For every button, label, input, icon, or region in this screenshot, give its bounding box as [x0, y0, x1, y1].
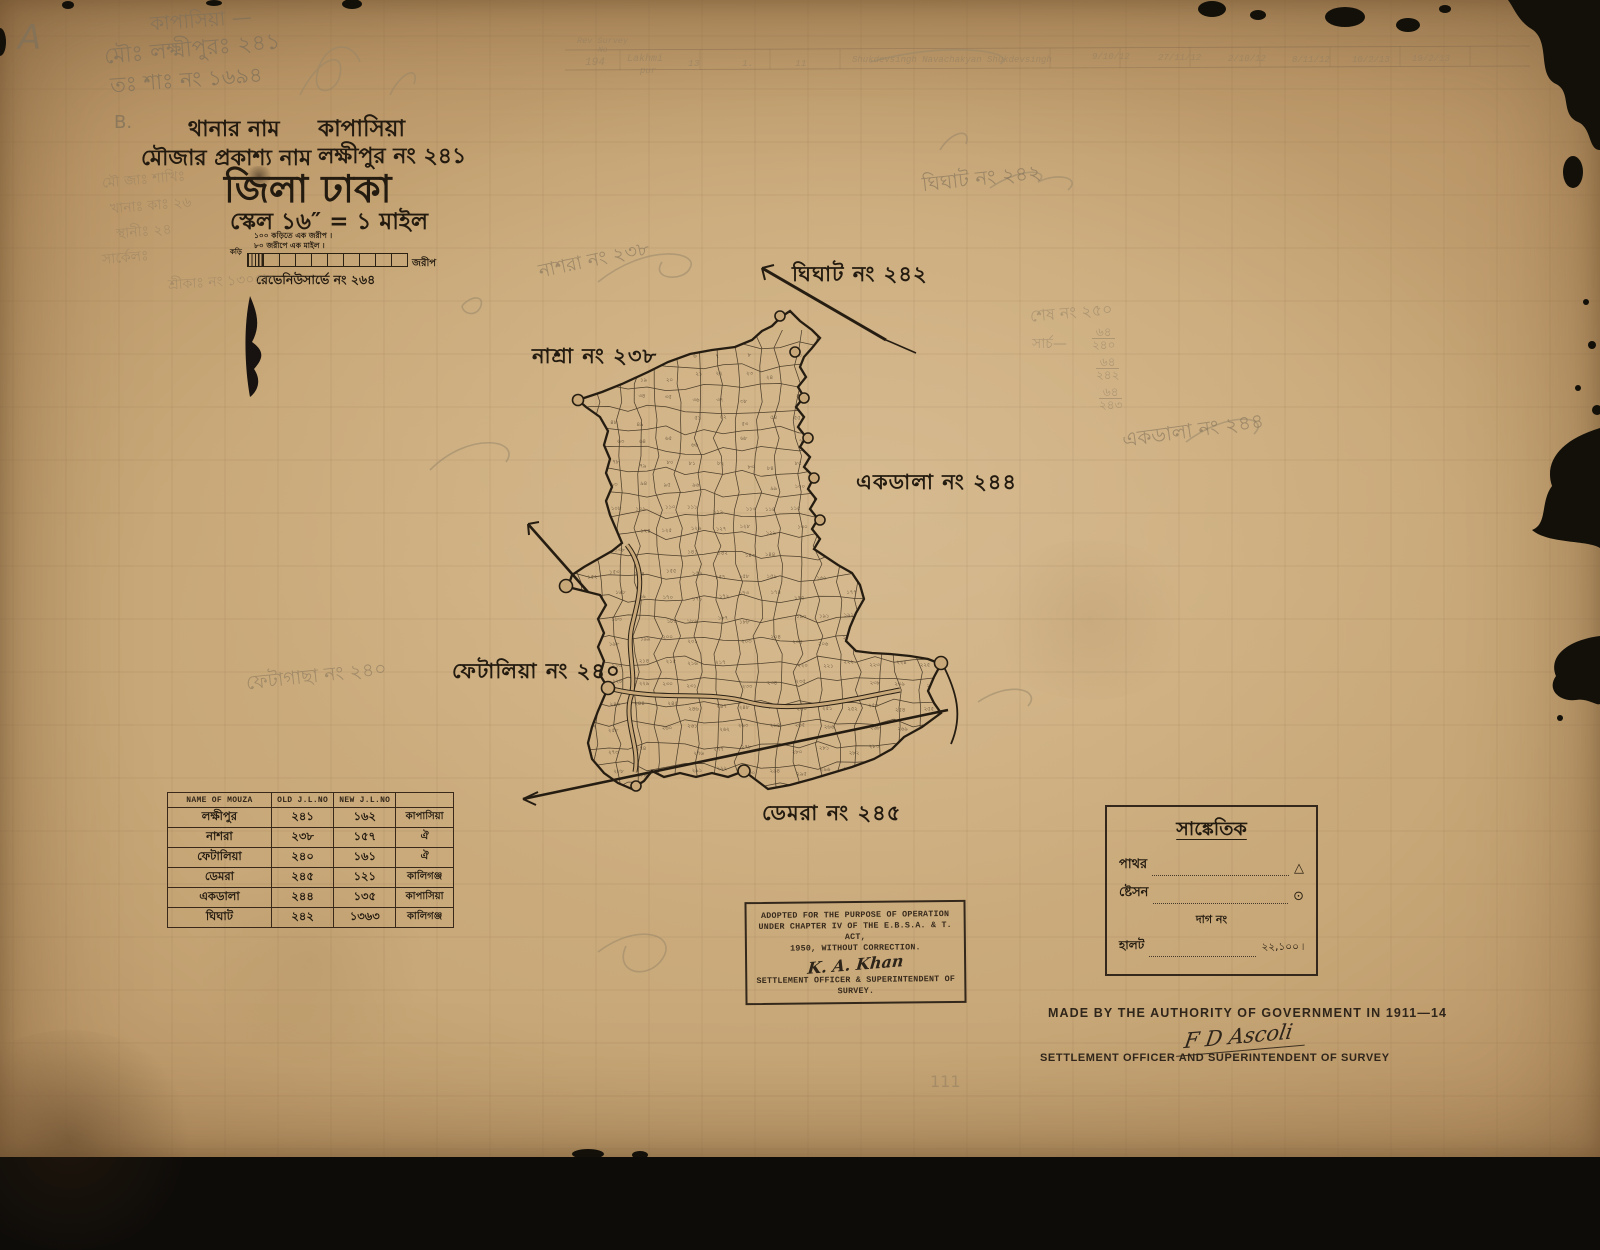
svg-text:২২৯: ২২৯	[639, 681, 649, 687]
legend-row-halot: হালট ২২,১০০ ৷	[1119, 937, 1304, 957]
col-new-header: NEW J.L.NO	[334, 793, 396, 808]
svg-text:৮২: ৮২	[717, 461, 724, 467]
svg-text:১২১: ১২১	[561, 528, 571, 534]
rev-survey-c3: 11	[795, 58, 806, 69]
svg-text:৯২: ৯২	[587, 483, 594, 489]
svg-text:২৬: ২৬	[818, 377, 825, 383]
svg-text:২৯৪: ২৯৪	[770, 768, 780, 774]
pencil-corner-b: B.	[114, 112, 132, 133]
table-row: একডালা২৪৪ ১৩৫কাপাসিয়া	[168, 888, 454, 908]
svg-text:১৭৫: ১৭৫	[794, 596, 804, 602]
svg-text:১৩: ১৩	[871, 354, 878, 360]
svg-text:১২৭: ১২৭	[716, 527, 726, 533]
svg-text:৭৪: ৭৪	[896, 437, 903, 443]
svg-text:১৭৭: ১৭৭	[846, 590, 856, 596]
svg-text:২৮: ২৮	[872, 375, 879, 381]
svg-text:১০৬: ১০৬	[564, 503, 575, 509]
svg-text:২৮৫: ২৮৫	[925, 751, 935, 757]
svg-text:২৪৫: ২৪৫	[668, 701, 678, 707]
svg-text:২৮৬: ২৮৬	[562, 768, 573, 774]
table-row: ফেটালিয়া২৪০ ১৬১ঐ	[168, 848, 454, 868]
svg-text:২১০: ২১০	[921, 636, 931, 642]
svg-text:২৬২: ২৬২	[719, 727, 729, 733]
revenue-survey-line: রেভেনিউসার্ভে নং ২৬৪	[256, 272, 375, 292]
table-header-row: NAME OF MOUZA OLD J.L.NO NEW J.L.NO	[168, 793, 454, 808]
svg-text:৩০৮: ৩০৮	[743, 792, 754, 798]
svg-text:২৫৮: ২৫৮	[608, 728, 619, 734]
label-nashra: নাশ্রা নং ২৩৮	[532, 340, 657, 375]
svg-text:১৯৫: ১৯৫	[924, 620, 934, 626]
svg-text:৭২: ৭২	[847, 439, 854, 445]
svg-text:২১৭: ২১৭	[715, 660, 725, 666]
svg-text:২৪৬: ২৪৬	[688, 706, 699, 712]
svg-text:১৩২: ১৩২	[842, 530, 852, 536]
table-row: ডেমরা২৪৫ ১২১কালিগঞ্জ	[168, 868, 454, 888]
svg-text:১৮৫: ১৮৫	[667, 619, 677, 625]
svg-text:২১৫: ২১৫	[666, 659, 676, 665]
svg-text:৩০৩: ৩০৩	[610, 794, 621, 800]
svg-text:৩৪: ৩৪	[638, 394, 645, 400]
svg-text:২২০: ২২০	[797, 663, 807, 669]
scale-bar-segment	[248, 254, 264, 266]
svg-text:২৪৪: ২৪৪	[634, 701, 644, 707]
svg-text:১৬৩: ১৬৩	[874, 569, 885, 575]
dotted-leader	[1149, 948, 1256, 957]
rev-survey-c1: 13	[688, 58, 699, 69]
svg-text:৩৮: ৩৮	[740, 399, 747, 405]
svg-text:৪৬: ৪৬	[565, 420, 572, 426]
svg-text:১৮০: ১৮০	[922, 594, 932, 600]
svg-text:৮৭: ৮৭	[849, 461, 856, 467]
svg-text:২২৪: ২২৪	[896, 660, 906, 666]
svg-text:৪৭: ৪৭	[587, 421, 594, 427]
svg-text:৩০৭: ৩০৭	[716, 796, 726, 802]
svg-text:৩৭: ৩৭	[716, 398, 723, 404]
pencil-left-col-4: সার্কেলঃ	[101, 244, 150, 272]
svg-text:১৩৪: ১৩৪	[894, 525, 904, 531]
svg-text:২৪৭: ২৪৭	[716, 704, 726, 710]
svg-text:৮৪: ৮৪	[767, 466, 774, 472]
legend-box: সাঙ্কেতিক পাথর △ ষ্টেসন ⊙ দাগ নং হালট ২২…	[1105, 805, 1318, 976]
table-row: ঘিঘাট২৪২ ১৩৬৩কালিগঞ্জ	[168, 908, 454, 928]
svg-text:২০৮: ২০৮	[870, 641, 881, 647]
svg-text:২৮৩: ২৮৩	[869, 744, 880, 750]
pencil-fraction-2: ৬৪২৪২	[1096, 356, 1119, 381]
svg-text:১৮৭: ১৮৭	[718, 616, 728, 622]
svg-text:৪৮: ৪৮	[610, 420, 617, 426]
svg-text:২৮১: ২৮১	[819, 745, 829, 751]
svg-text:১৯০: ১৯০	[796, 614, 806, 620]
rev-survey-date4: 8/11/12	[1292, 55, 1330, 65]
svg-text:৮: ৮	[748, 352, 752, 358]
rev-survey-date1: 9/10/12	[1092, 52, 1130, 62]
svg-text:২৩৫: ২৩৫	[795, 679, 805, 685]
svg-text:৮৬: ৮৬	[818, 461, 825, 467]
svg-text:১৯৬: ১৯৬	[563, 639, 574, 645]
svg-text:২৯২: ২৯২	[717, 766, 727, 772]
svg-text:১০৯: ১০৯	[635, 506, 645, 512]
svg-text:১২৮: ১২৮	[740, 524, 751, 530]
svg-text:২৩৩: ২৩৩	[742, 684, 753, 690]
svg-text:৬৮: ৬৮	[740, 436, 747, 442]
svg-text:১৬৭: ১৬৭	[582, 597, 592, 603]
svg-text:৭৯: ৭৯	[639, 463, 646, 469]
adoption-stamp: ADOPTED FOR THE PURPOSE OF OPERATION UND…	[744, 900, 966, 1005]
svg-text:১০০: ১০০	[795, 484, 805, 490]
pencil-111: 111	[930, 1072, 961, 1091]
svg-text:১১৪: ১১৪	[765, 507, 775, 513]
scale-note-2: ৮০ জরীপে এক মাইল ।	[254, 241, 325, 253]
pencil-corner-a: A	[18, 18, 41, 58]
svg-text:৫৩: ৫৩	[741, 421, 748, 427]
svg-text:১০২: ১০২	[846, 482, 856, 488]
svg-text:১৫৬: ১৫৬	[692, 571, 703, 577]
svg-text:১৫০: ১৫০	[921, 547, 931, 553]
label-fetalia: ফেটালিয়া নং ২৪০	[452, 655, 621, 690]
table-row: লক্ষীপুর২৪১ ১৬২কাপাসিয়া	[168, 808, 454, 828]
svg-text:৫৮: ৫৮	[872, 416, 879, 422]
svg-text:১৪৪: ১৪৪	[765, 552, 775, 558]
svg-text:৬০: ৬০	[927, 418, 934, 424]
svg-text:২৯৬: ২৯৬	[820, 767, 831, 773]
col-name-header: NAME OF MOUZA	[168, 793, 272, 808]
svg-text:২৬৯: ২৬৯	[897, 726, 907, 732]
rev-survey-c2: 1.	[742, 58, 753, 69]
svg-text:৬৪: ৬৪	[639, 439, 646, 445]
svg-text:২০৫: ২০৫	[792, 640, 802, 646]
svg-text:২৩০: ২৩০	[662, 682, 672, 688]
svg-text:২৯৫: ২৯৫	[796, 772, 806, 778]
svg-text:২০৬: ২০৬	[818, 642, 829, 648]
rev-survey-name1: Lakhmi	[627, 54, 663, 65]
table-row: নাশরা২৩৮ ১৫৭ঐ	[168, 828, 454, 848]
svg-text:২১৬: ২১৬	[687, 661, 698, 667]
svg-text:৩০: ৩০	[923, 377, 930, 383]
svg-text:১৬৮: ১৬৮	[615, 590, 626, 596]
svg-text:২২৫: ২২৫	[920, 662, 930, 668]
legend-title: সাঙ্কেতিক	[1119, 815, 1304, 847]
svg-text:২৫১: ২৫১	[822, 706, 832, 712]
pencil-sarch: সার্চ—	[1032, 332, 1067, 356]
svg-text:২৬৬: ২৬৬	[824, 724, 835, 730]
fold-ink-mark	[247, 350, 257, 357]
svg-text:১৬৪: ১৬৪	[894, 572, 904, 578]
svg-text:৭: ৭	[715, 354, 718, 360]
svg-text:১০৮: ১০৮	[611, 506, 622, 512]
svg-text:২৩১: ২৩১	[686, 683, 696, 689]
scale-right-label: জরীপ	[412, 256, 436, 273]
svg-text:২১৪: ২১৪	[639, 658, 649, 664]
svg-text:১৬৫: ১৬৫	[920, 572, 930, 578]
svg-text:২৫৩: ২৫৩	[868, 703, 879, 709]
svg-text:২৪৩: ২৪৩	[610, 702, 621, 708]
svg-text:৭৮: ৭৮	[612, 460, 619, 466]
svg-text:৫৪: ৫৪	[770, 415, 777, 421]
svg-text:২৩: ২৩	[746, 371, 753, 377]
rev-survey-name2: pur	[640, 66, 656, 76]
svg-text:২৪৮: ২৪৮	[739, 705, 750, 711]
svg-text:৩১: ৩১	[561, 392, 568, 398]
svg-text:১৭০: ১৭০	[663, 595, 673, 601]
svg-text:১০১: ১০১	[819, 484, 829, 490]
svg-text:২০১: ২০১	[687, 639, 697, 645]
label-ekdala: একডালা নং ২৪৪	[856, 466, 1017, 501]
imprint-line-1: MADE BY THE AUTHORITY OF GOVERNMENT IN 1…	[1048, 1006, 1447, 1020]
svg-text:২২২: ২২২	[843, 660, 853, 666]
svg-text:১১০: ১১০	[665, 505, 675, 511]
svg-text:১৮৮: ১৮৮	[739, 619, 750, 625]
svg-text:৭৬: ৭৬	[560, 465, 567, 471]
svg-text:৭৫: ৭৫	[926, 438, 933, 444]
svg-text:৫৯: ৫৯	[898, 415, 905, 421]
svg-text:৩১৫: ৩১৫	[923, 789, 933, 795]
fold-ink-mark	[245, 296, 261, 397]
imprint-line-2: SETTLEMENT OFFICER AND SUPERINTENDENT OF…	[1040, 1052, 1390, 1064]
svg-text:১৯৩: ১৯৩	[873, 615, 884, 621]
svg-text:১৭৮: ১৭৮	[876, 592, 887, 598]
svg-text:১৫২: ১৫২	[587, 574, 597, 580]
svg-text:২৬১: ২৬১	[687, 724, 697, 730]
svg-text:২৫৬: ২৫৬	[560, 726, 571, 732]
svg-text:২৭৭: ২৭৭	[713, 747, 723, 753]
pencil-fraction-1: ৬৪২৪০	[1092, 326, 1115, 351]
svg-text:১৭১: ১৭১	[692, 596, 702, 602]
svg-text:২৬৫: ২৬৫	[795, 722, 805, 728]
svg-text:৬৬: ৬৬	[691, 442, 698, 448]
svg-text:৯৪: ৯৪	[640, 481, 647, 487]
rev-survey-names: Shukdevsingh Navachakyan Shukdevsingh	[852, 55, 1052, 65]
svg-text:২৭৬: ২৭৬	[694, 751, 705, 757]
svg-text:৪১: ৪১	[819, 393, 826, 399]
svg-text:৫৫: ৫৫	[794, 416, 801, 422]
svg-text:১২২: ১২২	[585, 528, 595, 534]
svg-text:২৮৭: ২৮৭	[584, 774, 594, 780]
station-circle-icon: ⊙	[1293, 889, 1304, 904]
svg-text:২২: ২২	[716, 371, 723, 377]
svg-text:২০০: ২০০	[662, 635, 672, 641]
svg-text:১৪৭: ১৪৭	[846, 550, 856, 556]
svg-text:৯৯: ৯৯	[770, 486, 777, 492]
svg-text:১২৯: ১২৯	[766, 530, 776, 536]
svg-text:২৩৮: ২৩৮	[870, 681, 881, 687]
plot-numbers: ১২৩৪৬৭৮১০১১১২১৩১৪১৫১৬১৮১৯২০২১২২২৩২৪২৬২৭২…	[556, 349, 937, 802]
svg-text:২৯৯: ২৯৯	[896, 774, 906, 780]
svg-text:২৯১: ২৯১	[692, 768, 702, 774]
svg-text:১৪৯: ১৪৯	[900, 548, 910, 554]
svg-text:১৬১: ১৬১	[817, 575, 827, 581]
svg-text:৫১: ৫১	[694, 416, 701, 422]
halot-value: ২২,১০০ ৷	[1261, 940, 1304, 957]
svg-text:১৪৩: ১৪৩	[745, 553, 756, 559]
svg-text:৩০২: ৩০২	[588, 792, 598, 798]
svg-text:১১৩: ১১৩	[746, 506, 757, 512]
rev-survey-label2: No	[598, 46, 608, 55]
svg-text:২৯: ২৯	[903, 372, 910, 378]
svg-text:১৭৯: ১৭৯	[897, 597, 907, 603]
svg-text:১২৪: ১২৪	[640, 528, 650, 534]
rev-survey-num: 194	[585, 57, 605, 69]
svg-text:১৩৭: ১৩৭	[586, 554, 596, 560]
svg-text:২৮০: ২৮০	[792, 750, 802, 756]
svg-text:৫৭: ৫৭	[847, 420, 854, 426]
svg-text:১৯৯: ১৯৯	[640, 636, 650, 642]
svg-text:১৮৬: ১৮৬	[687, 619, 698, 625]
svg-text:৮৩: ৮৩	[747, 464, 754, 470]
svg-text:২৭০: ২৭০	[921, 728, 931, 734]
svg-text:৮১: ৮১	[689, 461, 696, 467]
svg-text:১১২: ১১২	[713, 509, 723, 515]
rev-survey-date6: 19/2/13	[1412, 54, 1450, 64]
svg-text:২২১: ২২১	[823, 664, 833, 670]
scale-left-label: কড়ি	[230, 246, 242, 258]
svg-text:১১৫: ১১৫	[790, 506, 800, 512]
svg-text:১৪১: ১৪১	[687, 549, 697, 555]
svg-text:৩০৬: ৩০৬	[692, 792, 703, 798]
svg-text:৪২: ৪২	[845, 394, 852, 400]
svg-text:১৯১: ১৯১	[819, 613, 829, 619]
pencil-fraction-3: ৬৪২৪৩	[1099, 386, 1122, 411]
svg-text:৭৩: ৭৩	[874, 443, 881, 449]
scale-bar	[247, 253, 408, 267]
svg-text:১৮: ১৮	[614, 376, 621, 382]
svg-text:৬১: ৬১	[558, 443, 565, 449]
dotted-leader	[1153, 895, 1288, 904]
rev-survey-date5: 10/2/13	[1352, 55, 1390, 65]
svg-text:১৯৮: ১৯৮	[609, 641, 620, 647]
rev-survey-date3: 2/10/12	[1228, 54, 1266, 64]
svg-text:২৪১: ২৪১	[556, 704, 566, 710]
svg-text:১৫৯: ১৫৯	[767, 574, 777, 580]
svg-text:১৪৮: ১৪৮	[873, 550, 884, 556]
svg-text:১৯: ১৯	[640, 377, 647, 383]
svg-text:১৫৫: ১৫৫	[666, 568, 676, 574]
legend-row-station: ষ্টেসন ⊙	[1119, 883, 1304, 904]
svg-text:৭৭: ৭৭	[589, 461, 596, 467]
svg-text:১৪: ১৪	[902, 354, 909, 360]
svg-text:২৩৯: ২৩৯	[894, 682, 904, 688]
triangle-icon: △	[1294, 861, 1304, 876]
svg-text:২৩৪: ২৩৪	[767, 680, 777, 686]
svg-text:৩৫: ৩৫	[665, 394, 672, 400]
svg-text:২৭: ২৭	[850, 375, 857, 381]
svg-text:২৪: ২৪	[766, 375, 773, 381]
svg-text:২১: ২১	[695, 372, 702, 378]
svg-text:১৩০: ১৩০	[797, 525, 807, 531]
svg-text:২৭১: ২৭১	[563, 747, 573, 753]
svg-text:২৫৪: ২৫৪	[895, 707, 905, 713]
svg-text:২৬৪: ২৬৪	[770, 723, 780, 729]
svg-text:২৫২: ২৫২	[847, 707, 857, 713]
stamp-line-5: SURVEY.	[753, 985, 958, 998]
svg-text:৮৫: ৮৫	[795, 461, 802, 467]
svg-text:১২৫: ১২৫	[662, 528, 672, 534]
svg-text:২৮৪: ২৮৪	[899, 746, 909, 752]
svg-text:১৯২: ১৯২	[844, 613, 854, 619]
svg-text:১৩৬: ১৩৬	[562, 549, 573, 555]
legend-note: দাগ নং	[1119, 911, 1304, 930]
svg-text:১১১: ১১১	[687, 505, 697, 511]
svg-text:১৮৩: ১৮৩	[611, 617, 622, 623]
label-ghighat: ঘিঘাট নং ২৪২	[792, 258, 928, 293]
svg-text:৬৫: ৬৫	[665, 436, 672, 442]
map-scan-page: { "header": { "thana_label": "থানার নাম"…	[0, 0, 1600, 1157]
svg-text:১৭৩: ১৭৩	[739, 591, 750, 597]
dotted-leader	[1152, 867, 1289, 876]
svg-text:১০৭: ১০৭	[588, 509, 598, 515]
svg-text:৬২: ৬২	[589, 441, 596, 447]
svg-text:৬: ৬	[693, 354, 697, 360]
svg-text:৩৬: ৩৬	[692, 397, 699, 403]
svg-text:২৮২: ২৮২	[849, 750, 859, 756]
svg-text:২০৩: ২০৩	[741, 639, 752, 645]
col-thana-header	[396, 793, 454, 808]
svg-text:২০৯: ২০৯	[895, 638, 905, 644]
legend-row-pathor: পাথর △	[1119, 855, 1304, 876]
svg-text:৪৯: ৪৯	[636, 422, 643, 428]
svg-text:১২৬: ১২৬	[691, 526, 702, 532]
svg-text:১৪২: ১৪২	[717, 551, 727, 557]
svg-text:১৭৪: ১৭৪	[771, 590, 781, 596]
svg-text:১৬৬: ১৬৬	[558, 594, 569, 600]
col-old-header: OLD J.L.NO	[271, 793, 333, 808]
svg-text:২৬৩: ২৬৩	[738, 723, 749, 729]
svg-text:২০: ২০	[666, 378, 673, 384]
svg-text:২৭৮: ২৭৮	[741, 745, 752, 751]
svg-text:২৪২: ২৪২	[582, 702, 592, 708]
svg-text:১১৯: ১১৯	[899, 507, 909, 513]
pencil-left-col-3: স্থানীঃ ২৪	[115, 218, 173, 247]
svg-text:৬৩: ৬৩	[617, 439, 624, 445]
rev-survey-label: Rev Survey	[577, 36, 628, 46]
svg-text:২০৪: ২০৪	[771, 635, 781, 641]
svg-text:১৩১: ১৩১	[822, 526, 832, 532]
svg-text:৯১: ৯১	[559, 488, 566, 494]
svg-text:৮০: ৮০	[666, 460, 673, 466]
svg-text:১৫৩: ১৫৩	[609, 570, 620, 576]
label-demra: ডেমরা নং ২৪৫	[762, 797, 901, 832]
svg-text:৫২: ৫২	[720, 415, 727, 421]
rev-survey-date2: 27/11/12	[1158, 53, 1201, 63]
svg-text:১৭২: ১৭২	[719, 594, 729, 600]
stamp-line-2: UNDER CHAPTER IV OF THE E.B.S.A. & T. AC…	[753, 920, 958, 944]
svg-text:২৬০: ২৬০	[662, 726, 672, 732]
svg-text:২৫৫: ২৫৫	[924, 706, 934, 712]
svg-text:৯৫: ৯৫	[664, 483, 671, 489]
svg-text:২২৩: ২২৩	[869, 663, 880, 669]
svg-text:২৭৩: ২৭৩	[608, 750, 619, 756]
svg-text:৯৬: ৯৬	[692, 483, 699, 489]
mouza-table: NAME OF MOUZA OLD J.L.NO NEW J.L.NO লক্ষ…	[167, 792, 454, 928]
svg-text:১৫৮: ১৫৮	[739, 574, 750, 580]
svg-text:১১৭: ১১৭	[847, 507, 857, 513]
svg-text:১৫৭: ১৫৭	[715, 574, 725, 580]
svg-text:২৮৮: ২৮৮	[613, 769, 624, 775]
